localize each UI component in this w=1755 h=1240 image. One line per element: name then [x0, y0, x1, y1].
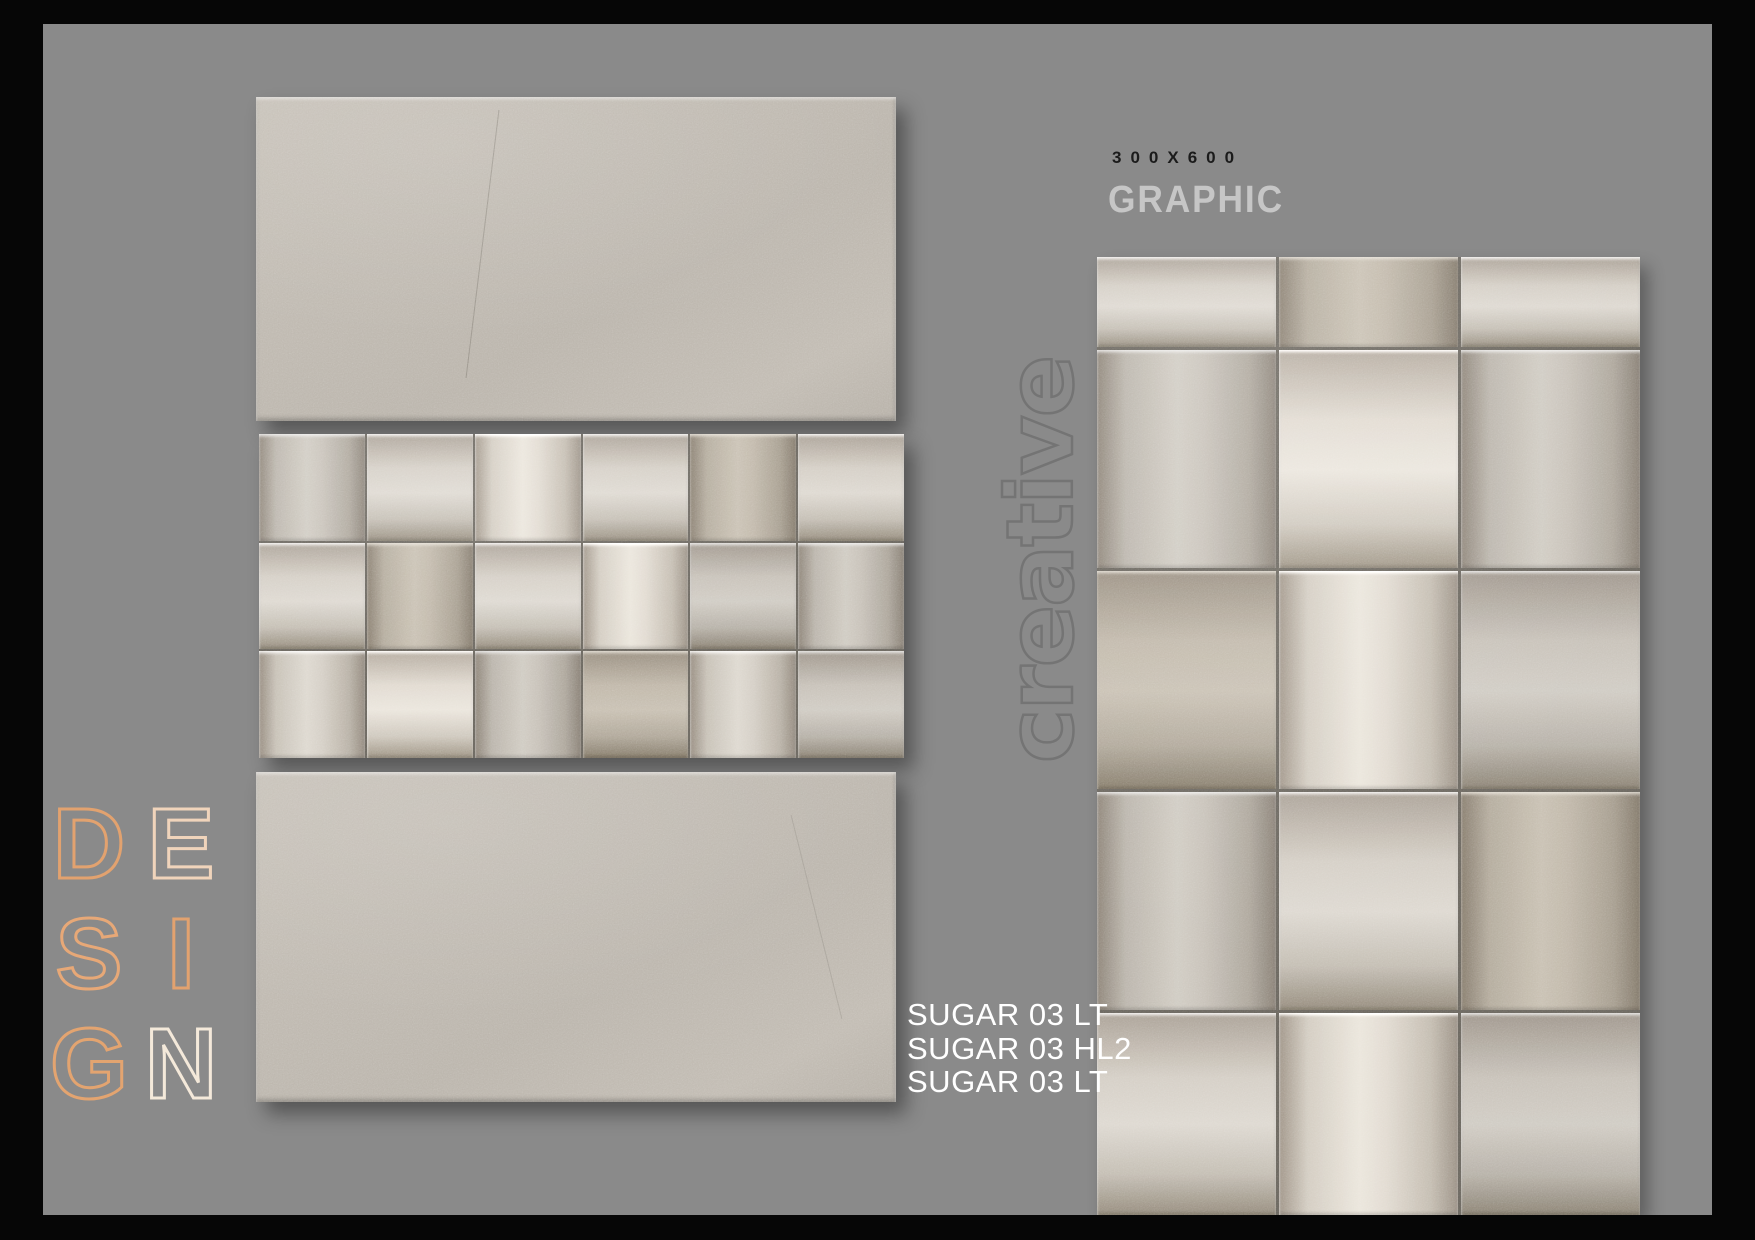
- weave-cell: [798, 434, 904, 541]
- product-name-label: SUGAR 03 HL2: [907, 1032, 1132, 1066]
- weave-cell: [259, 651, 365, 758]
- weave-grid: [1097, 257, 1640, 1215]
- weave-cell: [1279, 350, 1458, 568]
- creative-watermark: creative: [985, 340, 1095, 780]
- tile-panel-large-weave: [1097, 257, 1640, 1215]
- design-letter: E: [135, 789, 227, 899]
- weave-cell: [690, 543, 796, 650]
- weave-cell: [1461, 792, 1640, 1010]
- design-letter: D: [43, 789, 135, 899]
- weave-cell: [1279, 792, 1458, 1010]
- design-letter: N: [135, 1009, 227, 1119]
- weave-cell: [1461, 350, 1640, 568]
- weave-cell: [475, 543, 581, 650]
- weave-cell: [367, 651, 473, 758]
- design-letter: G: [43, 1009, 135, 1119]
- weave-cell: [367, 434, 473, 541]
- weave-cell: [798, 543, 904, 650]
- weave-cell: [475, 651, 581, 758]
- weave-cell: [475, 434, 581, 541]
- weave-cell: [1097, 792, 1276, 1010]
- weave-cell: [583, 651, 689, 758]
- poster-canvas: 300X600 GRAPHIC creative DESIGN SUGAR 03…: [43, 24, 1712, 1215]
- weave-cell: [1097, 257, 1276, 347]
- weave-cell: [1461, 257, 1640, 347]
- collection-type-label: GRAPHIC: [1108, 179, 1284, 222]
- design-letter: I: [135, 899, 227, 1009]
- weave-cell: [583, 543, 689, 650]
- size-label: 300X600: [1112, 148, 1243, 168]
- weave-cell: [798, 651, 904, 758]
- weave-cell: [1461, 571, 1640, 789]
- weave-cell: [1097, 571, 1276, 789]
- weave-cell: [690, 434, 796, 541]
- weave-cell: [1097, 350, 1276, 568]
- design-word: DESIGN: [43, 789, 227, 1119]
- tile-sample-middle-weave: [259, 434, 904, 758]
- weave-grid: [259, 434, 904, 758]
- tile-surface: [256, 97, 896, 421]
- tile-sample-top-plain: [256, 97, 896, 421]
- weave-cell: [1279, 1013, 1458, 1215]
- product-labels: SUGAR 03 LTSUGAR 03 HL2SUGAR 03 LT: [907, 998, 1132, 1099]
- weave-cell: [1279, 257, 1458, 347]
- product-name-label: SUGAR 03 LT: [907, 998, 1132, 1032]
- weave-cell: [1279, 571, 1458, 789]
- design-letter: S: [43, 899, 135, 1009]
- weave-cell: [259, 543, 365, 650]
- weave-cell: [1461, 1013, 1640, 1215]
- weave-cell: [259, 434, 365, 541]
- tile-sample-bottom-plain: [256, 772, 896, 1102]
- product-name-label: SUGAR 03 LT: [907, 1065, 1132, 1099]
- tile-surface: [256, 772, 896, 1102]
- poster-frame: 300X600 GRAPHIC creative DESIGN SUGAR 03…: [0, 0, 1755, 1240]
- weave-cell: [690, 651, 796, 758]
- weave-cell: [367, 543, 473, 650]
- weave-cell: [583, 434, 689, 541]
